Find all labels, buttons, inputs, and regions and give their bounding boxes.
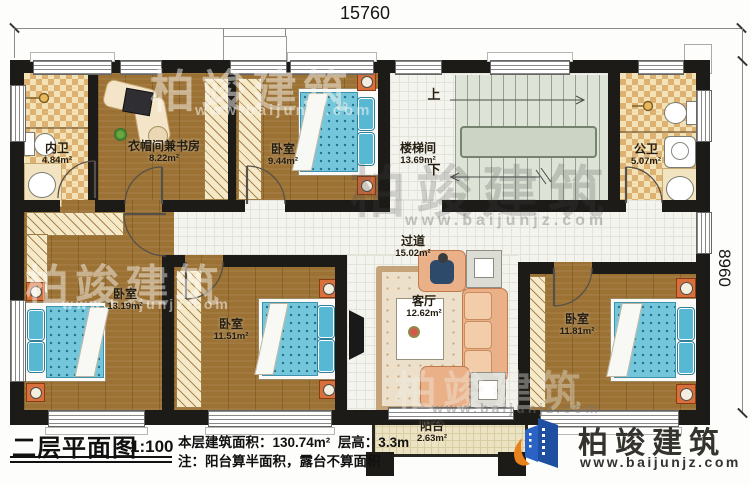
- wall: [162, 255, 185, 267]
- sink-icon: [28, 172, 56, 198]
- room-name: 卧室: [271, 142, 295, 156]
- room-area: 11.51m²: [191, 332, 271, 343]
- logo-tower: [538, 418, 558, 468]
- window: [33, 60, 112, 75]
- wall: [592, 262, 696, 274]
- window: [696, 90, 712, 142]
- window: [290, 60, 374, 75]
- pillow: [28, 310, 44, 340]
- floor-plan-canvas: 15760 8960 上 下: [0, 0, 750, 485]
- window: [208, 410, 332, 427]
- room-area: 5.07m²: [606, 157, 686, 168]
- room-name: 卧室: [113, 287, 137, 301]
- room-label-cloak-study: 衣帽间兼书房8.22m²: [103, 140, 225, 165]
- wardrobe: [204, 78, 230, 200]
- lamp-icon: [30, 387, 42, 399]
- room-name: 客厅: [412, 294, 436, 308]
- top-dimension-label: 15760: [320, 3, 410, 24]
- room-label-bedroom-right: 卧室11.81m²: [537, 313, 617, 338]
- wall: [95, 200, 125, 212]
- room-name: 卧室: [219, 317, 243, 331]
- armchair: [420, 366, 470, 408]
- top-dimension-line: [14, 28, 742, 29]
- wardrobe: [238, 78, 262, 200]
- room-area: 2.63m²: [392, 434, 472, 445]
- room-name: 公卫: [634, 142, 658, 156]
- wall: [335, 255, 347, 410]
- room-label-public-bath: 公卫5.07m²: [606, 143, 686, 168]
- room-label-bedroom-mid: 卧室11.51m²: [191, 318, 271, 343]
- shower-divider: [24, 127, 88, 129]
- wall: [608, 73, 620, 200]
- nightstand: [26, 383, 45, 402]
- pillow: [358, 133, 374, 165]
- balcony-door: [388, 407, 514, 420]
- title-underline: [10, 456, 172, 463]
- sofa-cushion: [464, 321, 492, 349]
- window: [120, 60, 162, 75]
- wall: [88, 73, 98, 200]
- nightstand: [676, 384, 696, 404]
- room-area: 11.81m²: [537, 327, 617, 338]
- room-area: 13.69m²: [378, 156, 458, 167]
- sink-icon: [666, 176, 694, 202]
- room-name: 衣帽间兼书房: [128, 139, 200, 153]
- window: [638, 60, 684, 75]
- wall: [285, 200, 390, 212]
- window: [395, 60, 442, 75]
- nightstand: [676, 278, 696, 298]
- brand-url: www.baijunjz.com: [580, 454, 741, 470]
- pillow: [678, 308, 694, 340]
- room-name: 内卫: [45, 141, 69, 155]
- window: [10, 85, 26, 142]
- wall: [228, 73, 236, 200]
- side-table-top: [478, 380, 498, 400]
- window: [230, 60, 287, 75]
- pillow: [318, 306, 334, 338]
- room-area: 15.02m²: [373, 249, 453, 260]
- wall: [518, 262, 530, 410]
- computer-icon: [122, 88, 154, 116]
- extension-line: [742, 28, 743, 60]
- lamp-icon: [30, 286, 42, 298]
- plan-scale: 1:100: [130, 437, 173, 457]
- lamp-icon: [361, 180, 373, 192]
- room-area: 9.44m²: [243, 157, 323, 168]
- room-label-inner-bath: 内卫4.84m²: [22, 142, 92, 167]
- extension-line: [14, 28, 15, 58]
- window: [696, 212, 712, 254]
- table-decor: [408, 326, 420, 338]
- side-table: [470, 372, 506, 408]
- brand-logo-block: 柏竣建筑 www.baijunjz.com: [508, 412, 746, 480]
- area-info: 本层建筑面积：130.74m² 层高：3.3m: [178, 431, 409, 451]
- lamp-icon: [680, 388, 693, 401]
- lamp-icon: [323, 283, 335, 295]
- wall: [162, 200, 245, 212]
- room-label-balcony: 阳台2.63m²: [392, 420, 472, 445]
- room-label-living-room: 客厅12.62m²: [384, 295, 464, 320]
- toilet-icon: [664, 102, 687, 124]
- note-info: 注：阳台算半面积，露台不算面积: [178, 450, 381, 470]
- nightstand: [26, 282, 45, 301]
- room-name: 楼梯间: [400, 141, 436, 155]
- room-label-corridor: 过道15.02m²: [373, 235, 453, 260]
- wall: [618, 200, 626, 212]
- room-area: 12.62m²: [384, 309, 464, 320]
- wardrobe: [26, 212, 124, 236]
- room-label-bedroom-left: 卧室13.19m²: [85, 288, 165, 313]
- stair-up-label: 上: [420, 88, 448, 103]
- room-name: 过道: [401, 234, 425, 248]
- room-name: 卧室: [565, 312, 589, 326]
- stair-handrail: [460, 126, 597, 158]
- person: [430, 260, 454, 284]
- sofa-cushion: [464, 292, 492, 320]
- right-dimension-line: [742, 62, 743, 414]
- logo-tower: [525, 425, 538, 462]
- pillow: [318, 340, 334, 372]
- room-area: 4.84m²: [22, 156, 92, 167]
- pillow: [678, 342, 694, 374]
- room-area: 13.19m²: [85, 302, 165, 313]
- right-dimension-label: 8960: [714, 236, 734, 300]
- pillow: [28, 342, 44, 372]
- lamp-icon: [323, 384, 335, 396]
- window: [490, 60, 570, 75]
- wall: [223, 255, 347, 267]
- brand-logo-icon: [508, 412, 574, 478]
- room-area: 8.22m²: [103, 154, 225, 165]
- lamp-icon: [361, 76, 373, 88]
- pillow: [358, 98, 374, 130]
- room-label-stairwell: 楼梯间13.69m²: [378, 142, 458, 167]
- wall: [162, 258, 174, 410]
- nightstand: [357, 176, 376, 195]
- wall: [662, 200, 696, 212]
- floor-area-text: 本层建筑面积：130.74m²: [178, 435, 330, 450]
- side-table: [466, 250, 502, 288]
- window: [48, 410, 145, 427]
- window: [10, 300, 26, 382]
- wall: [10, 200, 60, 212]
- bay-outline: [223, 36, 287, 62]
- wall: [442, 200, 618, 212]
- lamp-icon: [680, 282, 693, 295]
- wall: [378, 73, 390, 200]
- room-label-bedroom-top: 卧室9.44m²: [243, 143, 323, 168]
- shower-divider: [620, 131, 696, 133]
- room-name: 阳台: [420, 419, 444, 433]
- side-table-top: [474, 258, 494, 278]
